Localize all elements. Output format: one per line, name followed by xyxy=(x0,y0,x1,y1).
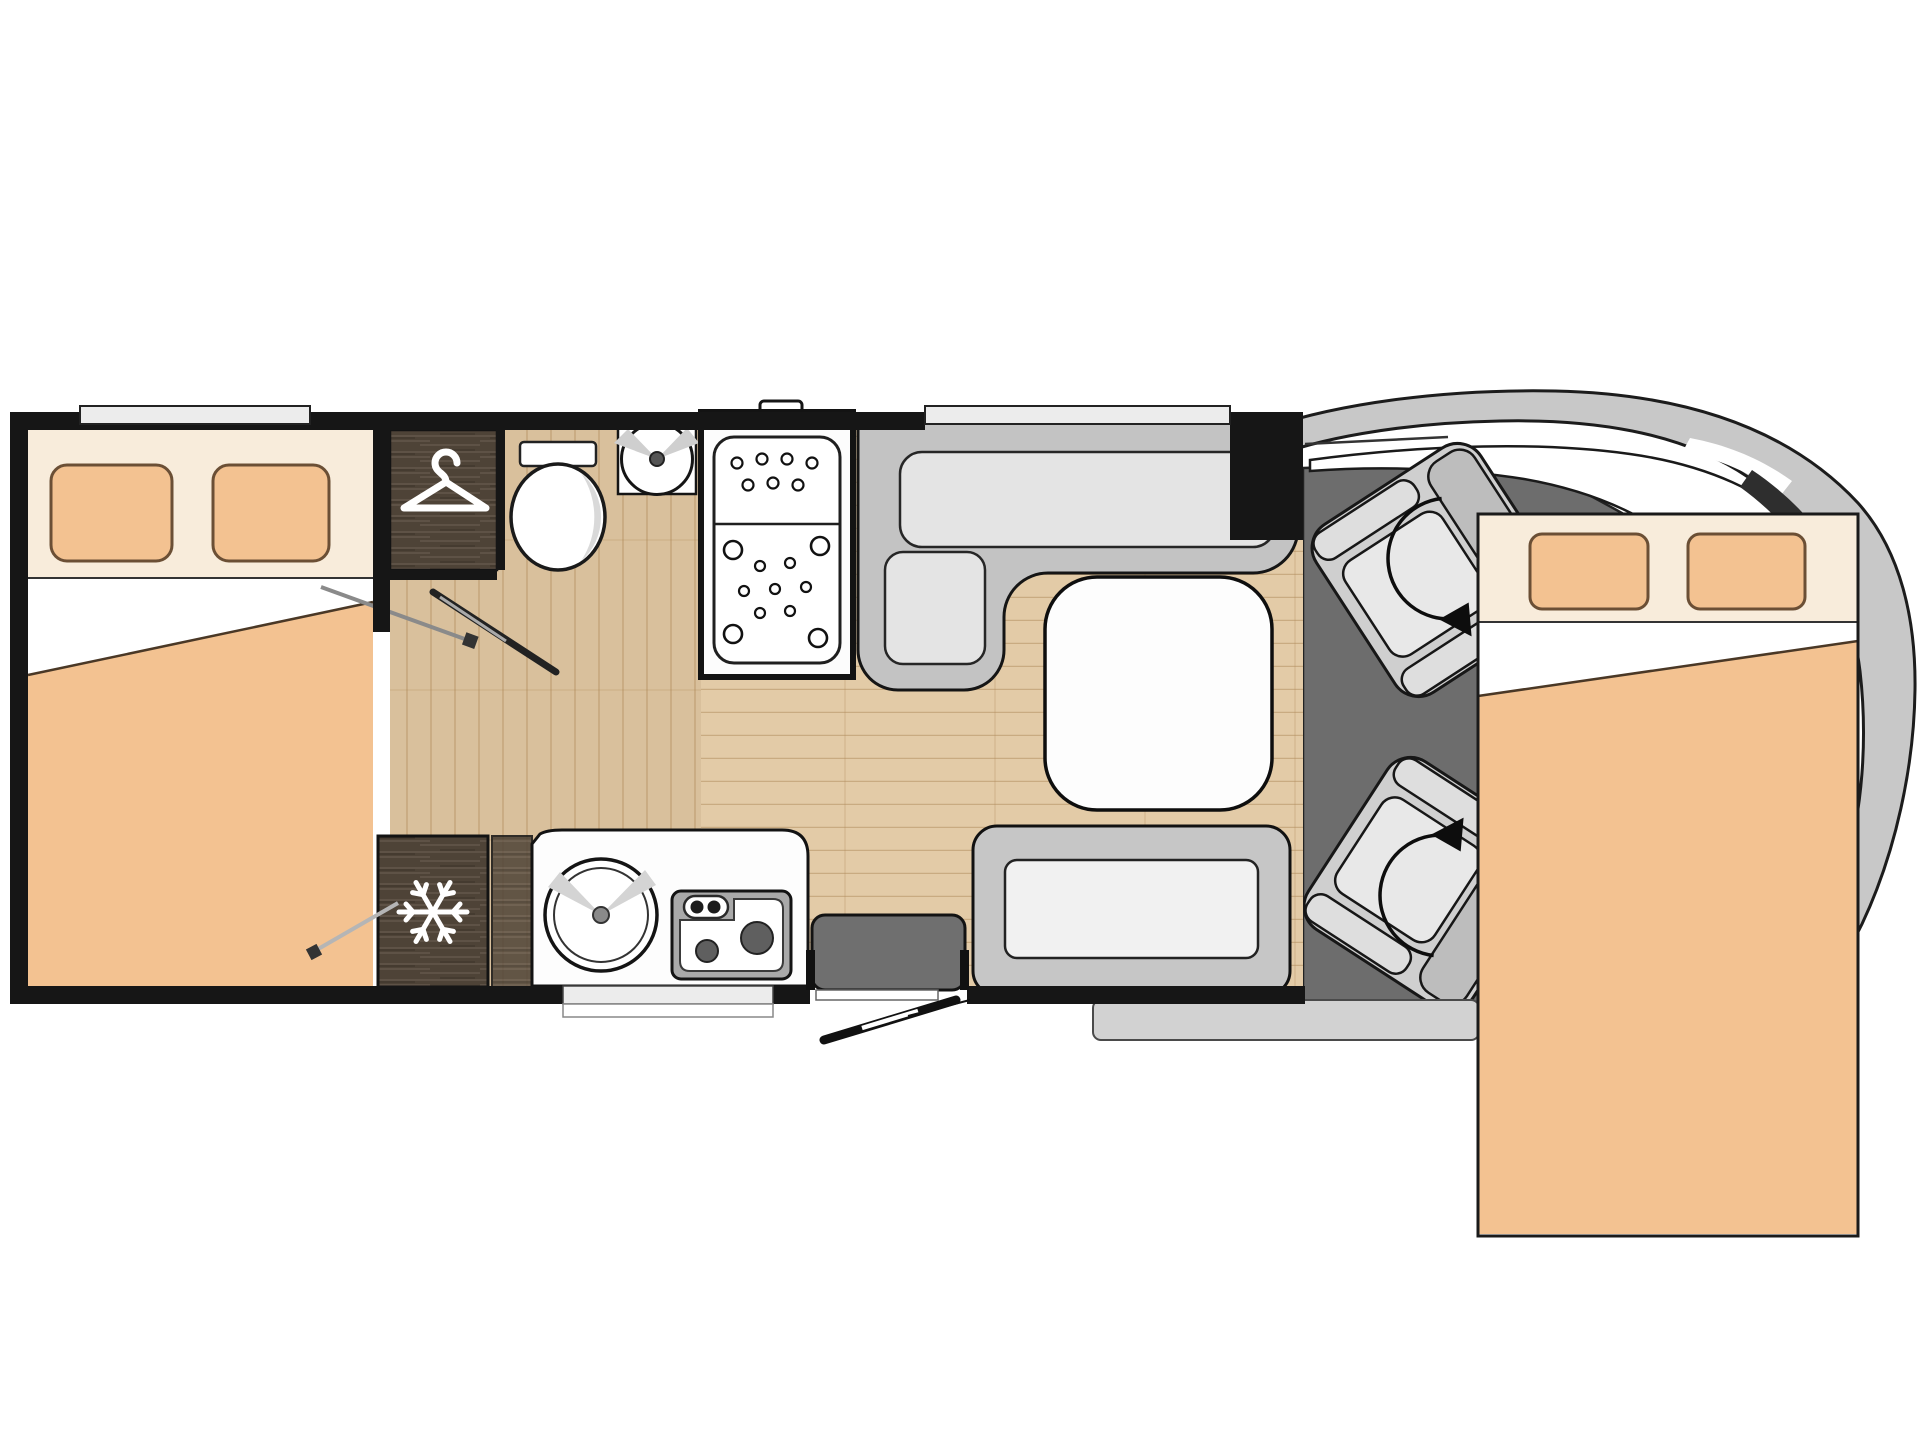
floorplan-canvas xyxy=(0,0,1920,1440)
washbasin-drain xyxy=(650,452,664,466)
pillow xyxy=(51,465,172,561)
bottom-wall xyxy=(967,986,1305,1004)
dinette-cushion xyxy=(900,452,1275,547)
floorplan-svg xyxy=(0,0,1920,1440)
door-post xyxy=(806,950,815,990)
pillow xyxy=(213,465,329,561)
entry-sill xyxy=(816,990,938,1000)
rear-wall xyxy=(10,412,28,1004)
fridge xyxy=(378,836,532,987)
burner-small xyxy=(696,940,718,962)
hob-knob xyxy=(691,901,704,914)
travel-bench-seat xyxy=(973,826,1290,995)
toilet xyxy=(511,464,605,570)
rear-double-bed xyxy=(28,430,373,988)
open-door-leaf-highlight xyxy=(862,1011,918,1028)
bedroom-wall xyxy=(373,430,390,632)
bed-blanket xyxy=(1478,641,1858,1234)
vehicle-skirt xyxy=(1093,1000,1479,1040)
pillow xyxy=(1688,534,1805,609)
front-corner-cabinet xyxy=(1230,412,1303,540)
hob-knob xyxy=(708,901,721,914)
drop-down-front-bed xyxy=(1478,514,1858,1236)
kitchen-side-cabinet xyxy=(492,836,532,987)
entry-step xyxy=(812,915,965,990)
wardrobe xyxy=(390,430,497,580)
dinette-window xyxy=(925,406,1230,424)
dinette-table xyxy=(1045,577,1272,810)
bathroom-wall xyxy=(496,430,505,570)
burner-large xyxy=(741,922,773,954)
pillow xyxy=(1530,534,1648,609)
entry-door xyxy=(806,915,970,1040)
kitchen-window xyxy=(563,986,773,1004)
dinette-cushion xyxy=(885,552,985,664)
kitchen-window-sill xyxy=(563,1004,773,1017)
sink-drain xyxy=(593,907,609,923)
wardrobe-wall xyxy=(390,570,497,580)
bedroom-window xyxy=(80,406,310,424)
door-post xyxy=(960,950,969,990)
shower-cubicle xyxy=(701,401,853,677)
kitchen xyxy=(532,830,808,986)
bench-cushion xyxy=(1005,860,1258,958)
